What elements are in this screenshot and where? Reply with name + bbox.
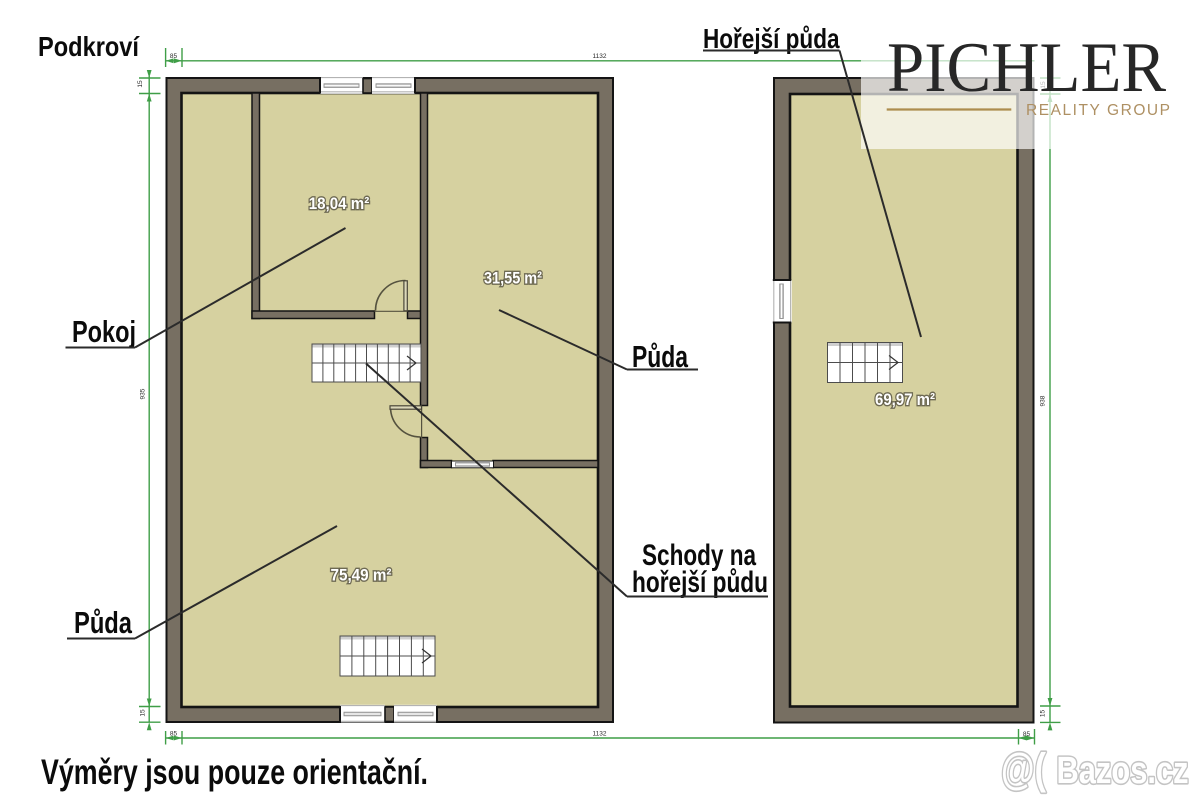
svg-text:Půda: Půda — [74, 605, 133, 640]
svg-text:75,49 m²: 75,49 m² — [331, 566, 392, 585]
svg-text:Podkroví: Podkroví — [38, 31, 140, 62]
svg-text:69,97 m²: 69,97 m² — [875, 390, 935, 409]
svg-text:85: 85 — [1023, 731, 1031, 738]
svg-text:31,55 m²: 31,55 m² — [484, 269, 542, 288]
svg-text:Hořejší půda: Hořejší půda — [703, 23, 840, 54]
svg-text:Výměry jsou pouze orientační.: Výměry jsou pouze orientační. — [41, 753, 428, 792]
svg-text:938: 938 — [1040, 395, 1047, 406]
svg-text:Pokoj: Pokoj — [72, 314, 136, 349]
svg-text:PICHLER: PICHLER — [887, 29, 1167, 107]
svg-text:Bazos.cz: Bazos.cz — [1057, 750, 1189, 792]
svg-text:1132: 1132 — [593, 731, 607, 738]
svg-text:15: 15 — [140, 709, 147, 717]
svg-text:15: 15 — [1040, 710, 1047, 718]
svg-text:@(: @( — [1001, 745, 1046, 794]
svg-text:85: 85 — [170, 53, 178, 60]
svg-text:hořejší půdu: hořejší půdu — [632, 566, 768, 599]
svg-text:1132: 1132 — [593, 53, 607, 60]
svg-text:REALITY GROUP: REALITY GROUP — [1026, 102, 1170, 119]
svg-text:935: 935 — [140, 388, 147, 399]
svg-text:18,04 m²: 18,04 m² — [309, 194, 370, 213]
svg-text:15: 15 — [137, 80, 144, 88]
svg-text:85: 85 — [170, 731, 178, 738]
